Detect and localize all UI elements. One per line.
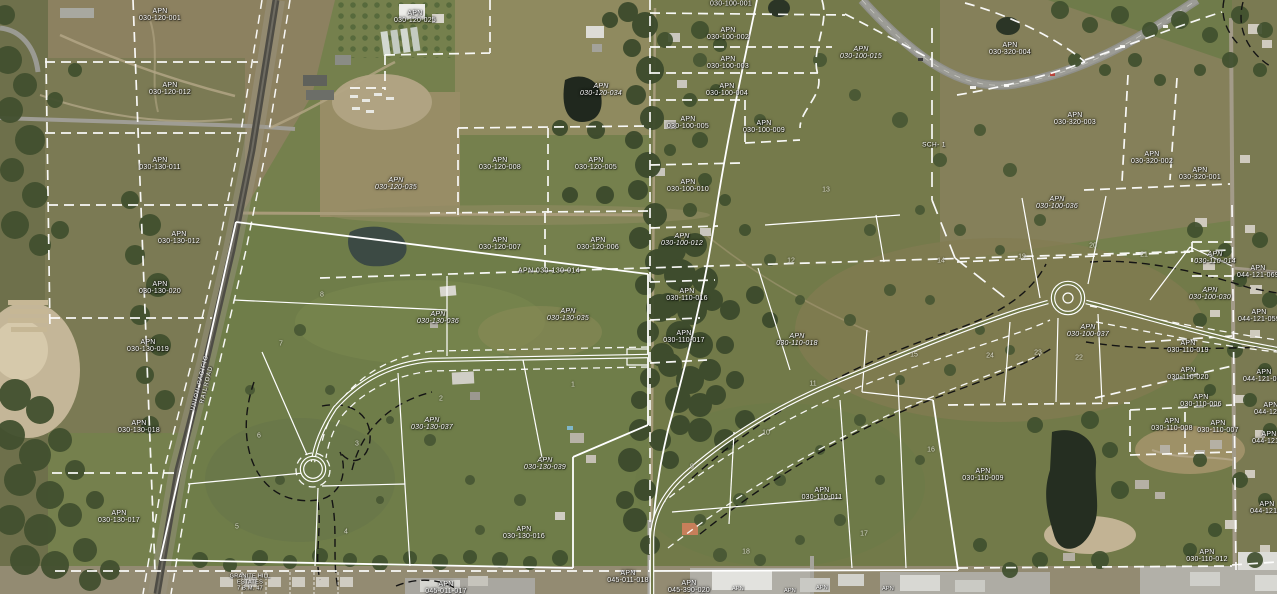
aerial-imagery — [0, 0, 1277, 594]
map-viewport[interactable]: APN030-120-001APN030-120-025APN030-120-0… — [0, 0, 1277, 594]
